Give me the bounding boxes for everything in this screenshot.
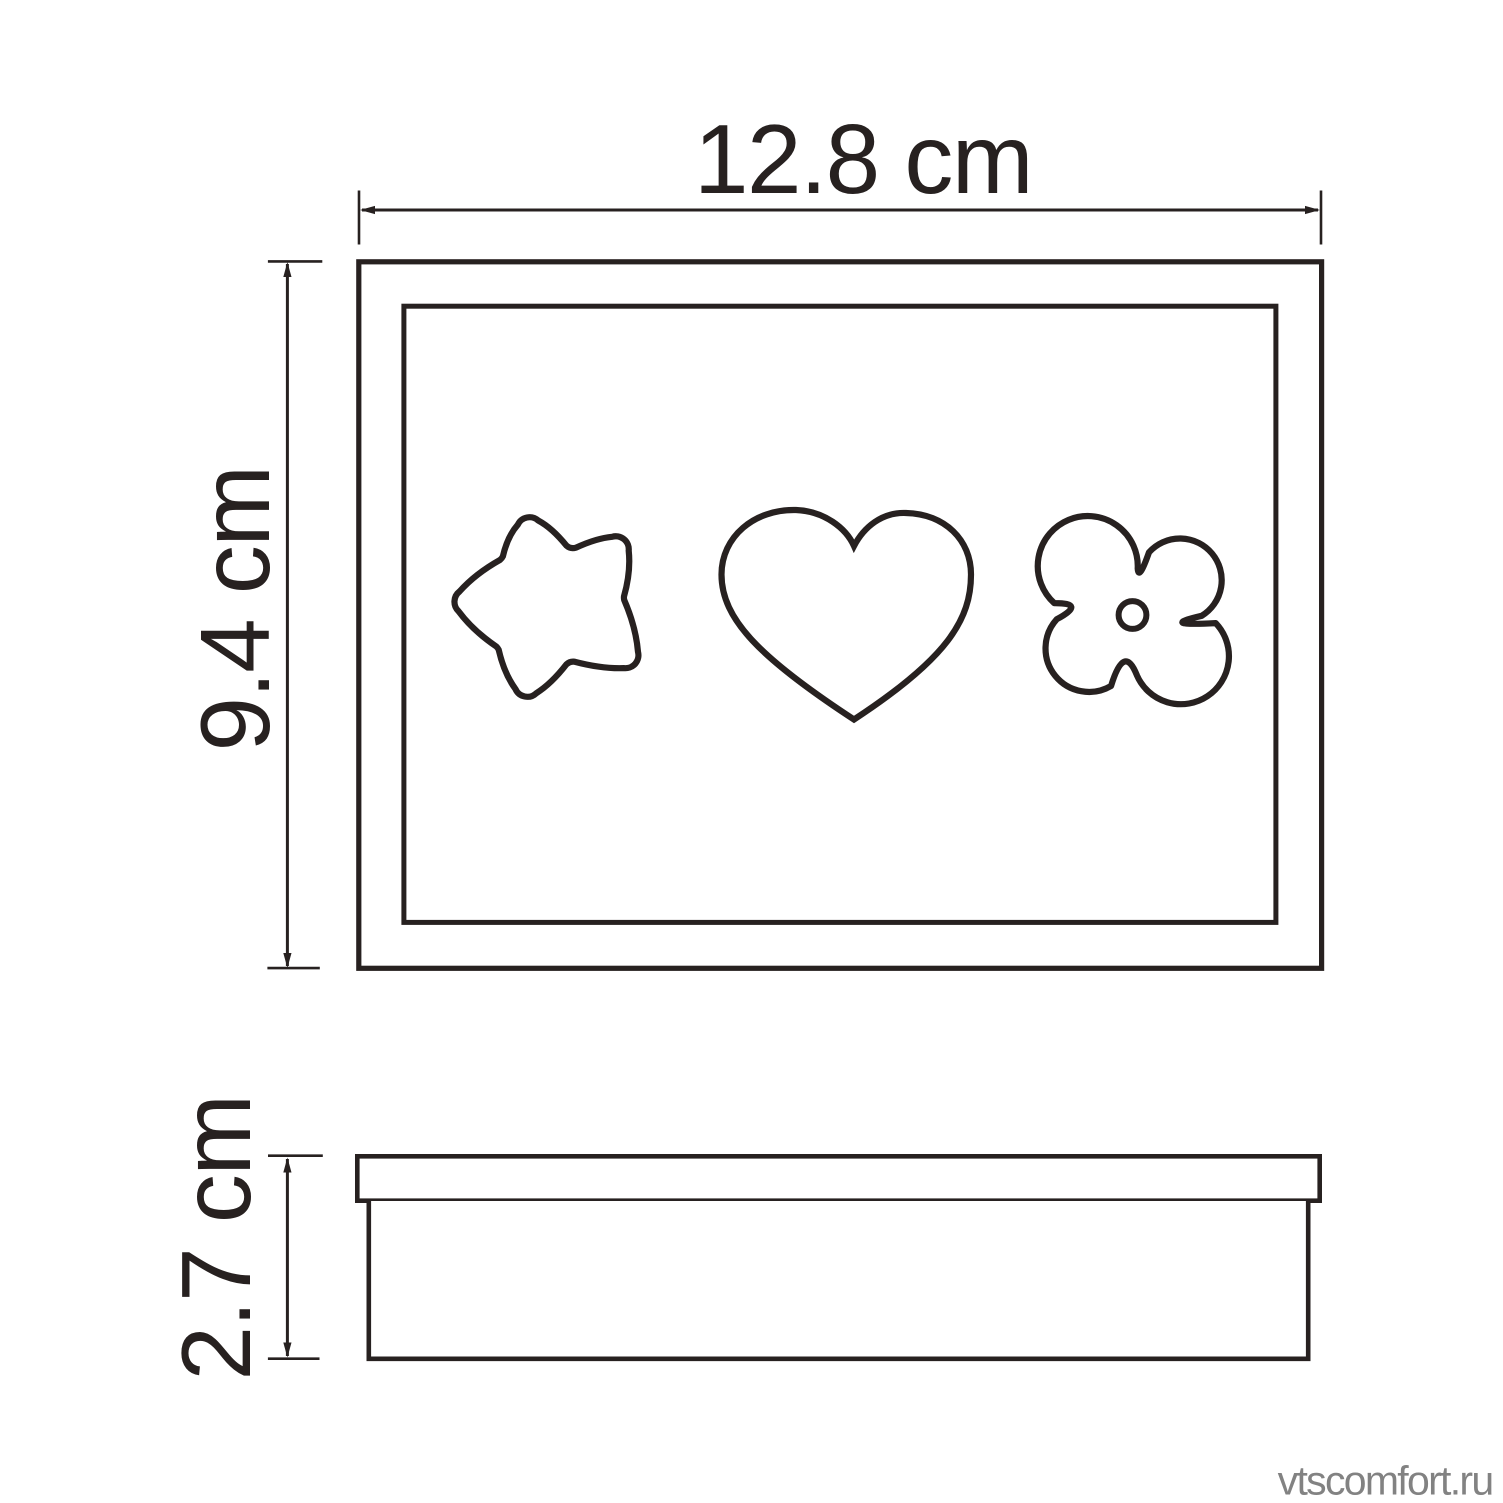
svg-text:12.8 cm: 12.8 cm (694, 104, 1032, 214)
svg-text:2.7 cm: 2.7 cm (161, 1095, 271, 1380)
svg-text:vtscomfort.ru: vtscomfort.ru (1278, 1458, 1493, 1503)
svg-text:9.4 cm: 9.4 cm (180, 466, 290, 751)
